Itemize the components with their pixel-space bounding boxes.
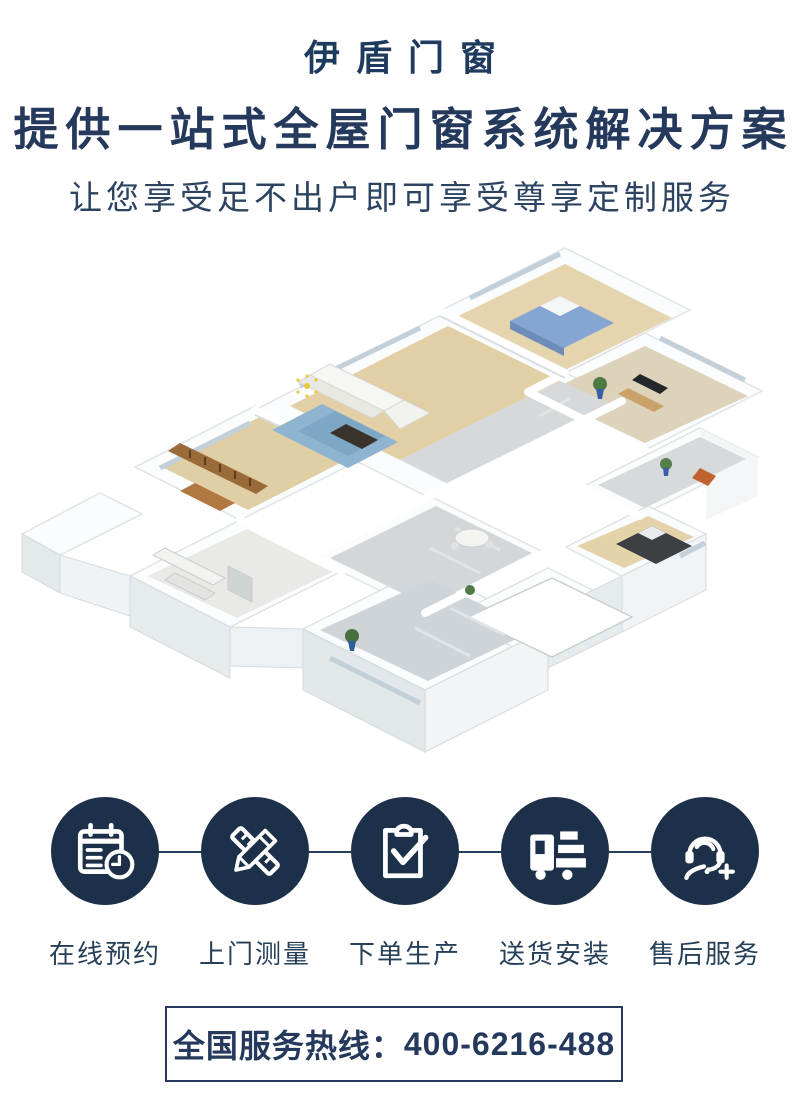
hotline-number: 400-6216-488: [404, 1026, 615, 1063]
calendar-clock-icon: [72, 818, 138, 884]
service-circle: [51, 797, 159, 905]
pencil-ruler-icon: [222, 818, 288, 884]
service-circle: [501, 797, 609, 905]
delivery-truck-icon: [522, 818, 588, 884]
service-delivery-install: 送货安装: [480, 797, 630, 971]
service-label: 售后服务: [630, 934, 780, 971]
promo-page: 伊盾门窗 提供一站式全屋门窗系统解决方案 让您享受足不出户即可享受尊享定制服务: [0, 0, 800, 1109]
service-label: 上门测量: [180, 934, 330, 971]
hotline-banner: 全国服务热线：400-6216-488: [165, 1006, 623, 1082]
service-label: 下单生产: [330, 934, 480, 971]
clipboard-check-icon: [372, 818, 438, 884]
service-circle: [651, 797, 759, 905]
service-circle: [201, 797, 309, 905]
headset-plus-icon: [672, 818, 738, 884]
service-label: 送货安装: [480, 934, 630, 971]
hotline-label: 全国服务热线：: [173, 1021, 404, 1067]
main-headline: 提供一站式全屋门窗系统解决方案: [0, 106, 800, 153]
service-steps: 在线预约: [0, 797, 800, 972]
service-online-booking: 在线预约: [30, 797, 180, 971]
floorplan-illustration: [0, 238, 800, 773]
service-measurement: 上门测量: [180, 797, 330, 971]
brand-title: 伊盾门窗: [0, 0, 800, 78]
service-label: 在线预约: [30, 934, 180, 971]
service-after-sales: 售后服务: [630, 797, 780, 971]
header: 伊盾门窗 提供一站式全屋门窗系统解决方案 让您享受足不出户即可享受尊享定制服务: [0, 0, 800, 216]
service-circle: [351, 797, 459, 905]
sub-headline: 让您享受足不出户即可享受尊享定制服务: [0, 180, 800, 216]
service-order-production: 下单生产: [330, 797, 480, 971]
